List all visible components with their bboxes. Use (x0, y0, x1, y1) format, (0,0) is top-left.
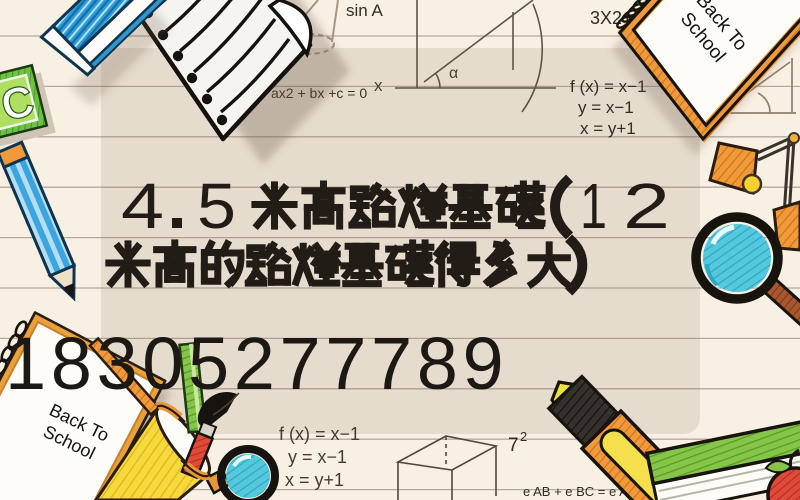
svg-text:x = y+1: x = y+1 (285, 470, 344, 490)
svg-text:2: 2 (623, 170, 670, 242)
svg-text:sin A: sin A (346, 1, 384, 20)
svg-text:2: 2 (520, 429, 527, 444)
svg-text:x: x (374, 76, 383, 95)
svg-text:5: 5 (197, 170, 236, 242)
svg-text:f (x) = x−1: f (x) = x−1 (570, 77, 647, 96)
svg-text:f (x) = x−1: f (x) = x−1 (279, 424, 360, 444)
svg-text:4: 4 (121, 170, 164, 242)
svg-text:y = x−1: y = x−1 (288, 447, 347, 467)
svg-text:y = x−1: y = x−1 (578, 98, 634, 117)
svg-text:7: 7 (508, 435, 519, 456)
svg-text:x = y+1: x = y+1 (580, 119, 636, 138)
svg-text:1: 1 (580, 170, 607, 242)
svg-text:α: α (449, 65, 458, 82)
svg-text:18305277789: 18305277789 (5, 322, 508, 405)
